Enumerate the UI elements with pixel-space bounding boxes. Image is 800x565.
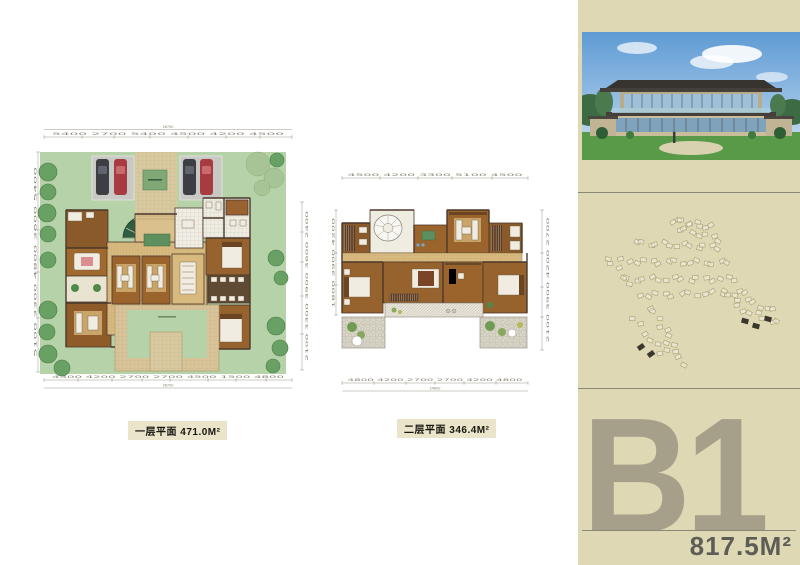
plan2-bottom-dimensions: 4800 4200 2700 2700 4200 4800 24600 [342,378,528,391]
unit-label-block: B1 [578,390,800,530]
svg-text:5100 3300 4800 3600 5400: 5100 3300 4800 3600 5400 [34,167,38,357]
south-courtyard [115,305,219,371]
site-plan-scatter [605,217,780,368]
entry-driveway [135,152,177,214]
sidebar-divider-1 [578,192,800,193]
house-first-floor [66,198,250,371]
room-bedroom-w2 [342,262,383,313]
svg-text:4500 4200 2700 2700 4500 1500: 4500 4200 2700 2700 4500 1500 4800 [52,375,284,379]
area-label: 817.5M² [690,531,792,561]
room-living-2f [447,210,489,253]
room-family [414,225,447,253]
balcony-center [385,303,483,317]
svg-text:24600: 24600 [430,387,441,391]
person-figure [673,134,675,143]
svg-text:5400 2700 5400 4500 4200 4500: 5400 2700 5400 4500 4200 4500 [52,132,284,136]
dining-table [81,257,93,266]
sidebar-divider-2 [578,388,800,389]
plan1-caption-text: 一层平面 471.0M² [135,427,220,438]
tea-room-rug [144,234,170,246]
site-plan [578,195,800,385]
room-wardrobe-w [342,223,370,253]
svg-text:1800 3900 4200: 1800 3900 4200 [332,218,336,308]
villa-building [588,80,794,136]
svg-text:26700: 26700 [163,384,174,388]
svg-text:2100 3900 4200 2700: 2100 3900 4200 2700 [546,218,550,343]
plan1-left-dimensions: 5100 3300 4800 3600 5400 [34,152,40,372]
area-label-block: 817.5M² [578,531,800,565]
house-second-floor [342,210,527,348]
first-floor-plan: 26700 5400 2700 5400 4500 4200 4500 4500… [30,120,315,400]
car-red [200,159,213,195]
sitting-room-b [142,256,170,304]
dining-hall [172,254,204,304]
room-bedroom-c [383,262,443,303]
second-floor-plan: 4500 4200 3300 5100 4500 4800 4200 2700 … [330,165,565,400]
unit-label: B1 [582,394,764,530]
plan2-right-dimensions: 2100 3900 4200 2700 [540,210,550,350]
bed [222,242,242,268]
plan2-caption-text: 二层平面 346.4M² [404,425,489,436]
courtyard-label-mark [158,316,176,318]
room-study [443,262,483,303]
plan1-bottom-dimensions: 4500 4200 2700 2700 4500 1500 4800 26700 [44,375,292,388]
car-dark [183,159,196,195]
terrace-sw [342,317,385,348]
svg-text:2100 3300 3900 3600 2400: 2100 3300 3900 3600 2400 [305,211,309,361]
car-red [114,159,127,195]
svg-text:4800 4200 2700 2700 4200 4800: 4800 4200 2700 2700 4200 4800 [348,378,523,382]
plan1-caption: 一层平面 471.0M² [128,421,227,440]
villa-photo [582,32,800,160]
stair-room [370,210,414,253]
entry-label-mark [148,179,162,181]
terrace-se [480,317,527,348]
sidebar: B1 817.5M² [578,0,800,565]
room-wardrobe-e [489,223,522,253]
site-plan-highlight-units [637,316,772,358]
corridor-2f [342,253,522,262]
car-dark [96,159,109,195]
plan2-caption: 二层平面 346.4M² [397,419,496,438]
room-bedroom-e3 [483,262,527,313]
svg-text:4500 4200 3300 5100 4500: 4500 4200 3300 5100 4500 [348,173,523,177]
plan2-left-dimensions: 1800 3900 4200 [332,210,338,315]
plan1-right-dimensions: 2100 3300 3900 3600 2400 [300,202,309,370]
brochure-page: 26700 5400 2700 5400 4500 4200 4500 4500… [0,0,800,565]
bed [220,314,242,342]
plan1-top-dimensions: 26700 5400 2700 5400 4500 4200 4500 [44,125,292,139]
sitting-room-a [112,256,140,304]
plan2-top-dimensions: 4500 4200 3300 5100 4500 [342,173,528,180]
svg-text:26700: 26700 [163,125,174,129]
